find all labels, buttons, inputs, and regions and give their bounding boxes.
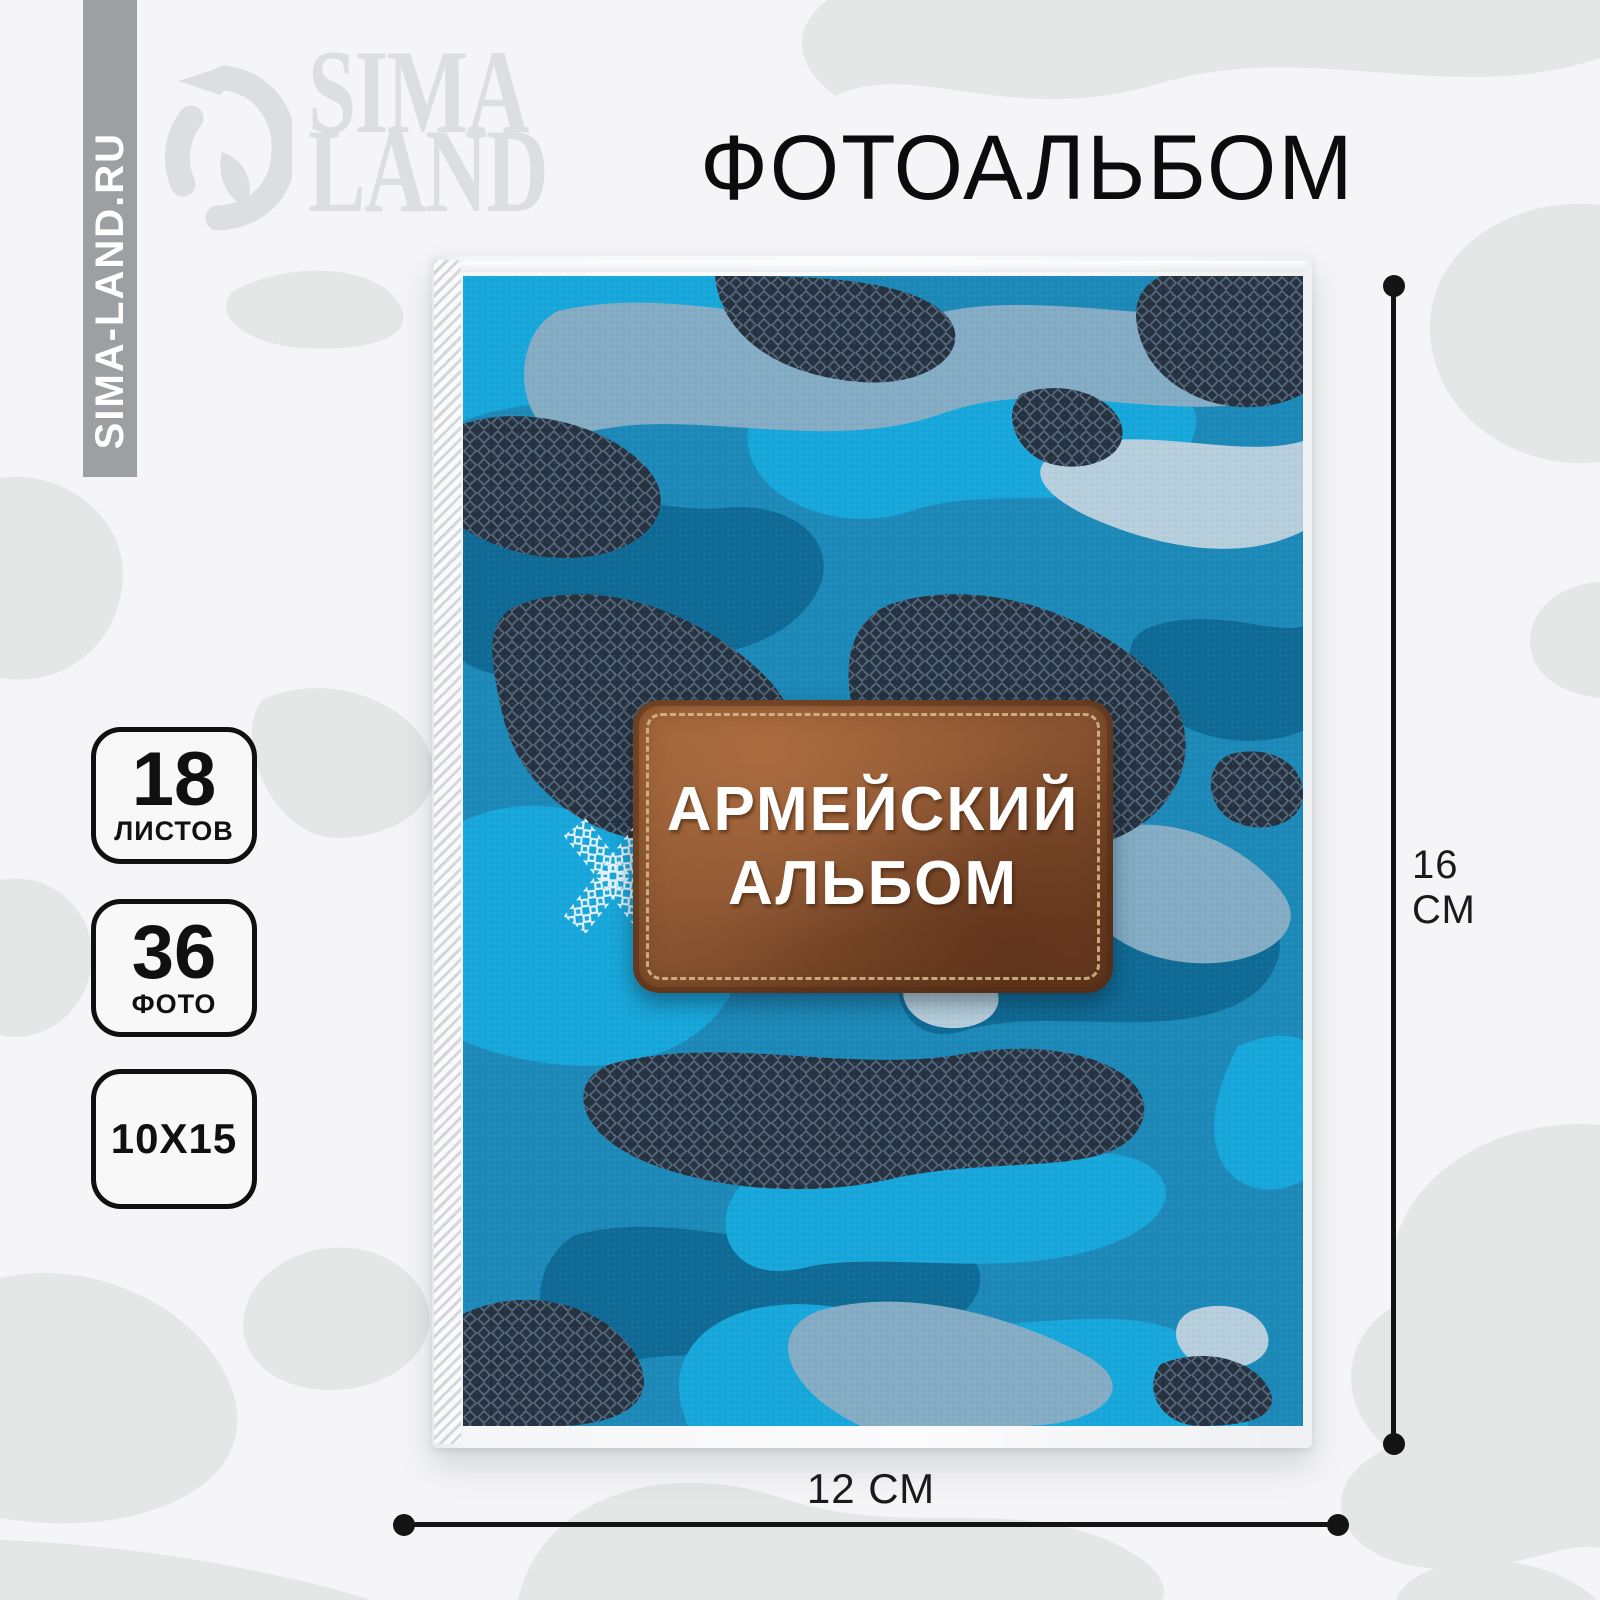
bird-swirl-icon: [160, 64, 292, 236]
badge-value: 36: [132, 917, 217, 989]
badge-label: ФОТО: [132, 989, 217, 1020]
page-title: ФОТОАЛЬБОМ: [700, 116, 1355, 221]
product-photo-plastic-sleeve: АРМЕЙСКИЙ АЛЬБОМ: [432, 256, 1312, 1448]
height-value: 16: [1412, 843, 1476, 888]
sidebar-bar: SIMA-LAND.RU: [83, 0, 137, 477]
height-dimension-label: 16 СМ: [1412, 843, 1476, 933]
height-unit: СМ: [1412, 888, 1476, 933]
brand-logo-text: SIMA LAND: [308, 52, 640, 210]
badge-value: 18: [132, 744, 217, 816]
spec-badge-photos: 36 ФОТО: [91, 899, 257, 1037]
spec-badge-sheets: 18 ЛИСТОВ: [91, 727, 257, 864]
page: { "brand": { "logo_line1": "SIMA", "logo…: [0, 0, 1600, 1600]
spec-badge-size: 10X15: [91, 1069, 257, 1209]
badge-label: ЛИСТОВ: [114, 816, 234, 847]
width-dimension-line: [402, 1522, 1340, 1527]
logo-line2: LAND: [308, 131, 547, 210]
width-dimension-label: 12 СМ: [771, 1466, 971, 1511]
leather-patch: АРМЕЙСКИЙ АЛЬБОМ: [633, 700, 1113, 993]
sidebar-url-text: SIMA-LAND.RU: [88, 132, 133, 449]
badge-value: 10X15: [111, 1116, 237, 1162]
patch-title-line2: АЛЬБОМ: [728, 853, 1018, 915]
patch-title-line1: АРМЕЙСКИЙ: [667, 779, 1080, 841]
album-cover-camo: АРМЕЙСКИЙ АЛЬБОМ: [463, 276, 1303, 1426]
height-dimension-line: [1391, 284, 1396, 1446]
